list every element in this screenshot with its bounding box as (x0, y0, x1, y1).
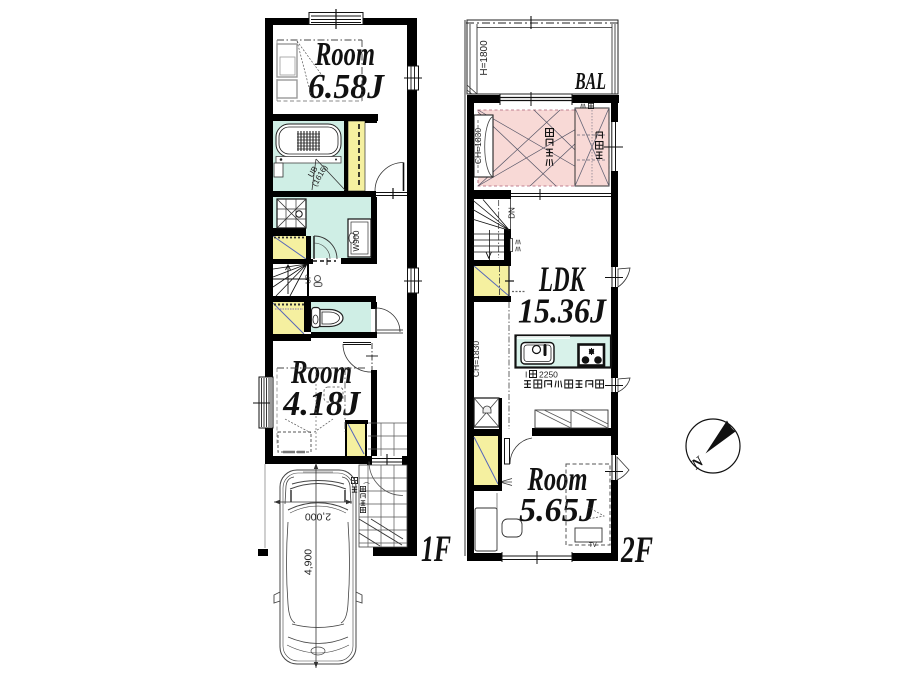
svg-text:2,000: 2,000 (305, 511, 331, 523)
svg-text:I: I (525, 370, 527, 380)
svg-text:(: ( (363, 482, 369, 484)
svg-text:CH=1830: CH=1830 (473, 128, 483, 164)
svg-text:15.36J: 15.36J (518, 292, 607, 331)
svg-text:5.65J: 5.65J (519, 492, 597, 529)
svg-text:UP: UP (306, 274, 313, 284)
svg-text:2F: 2F (620, 530, 653, 571)
svg-text:4.18J: 4.18J (282, 384, 361, 423)
svg-text:6.58J: 6.58J (308, 67, 385, 106)
svg-text:1F: 1F (421, 529, 451, 570)
svg-text:2250: 2250 (539, 370, 558, 380)
svg-text:BAL: BAL (574, 69, 606, 95)
svg-text:4,900: 4,900 (303, 549, 315, 575)
svg-text:DN: DN (508, 207, 517, 219)
svg-text:TV: TV (589, 543, 597, 549)
svg-text:CH=1830: CH=1830 (471, 341, 481, 377)
svg-text:H=1800: H=1800 (479, 40, 490, 76)
svg-text:W900: W900 (352, 230, 361, 251)
